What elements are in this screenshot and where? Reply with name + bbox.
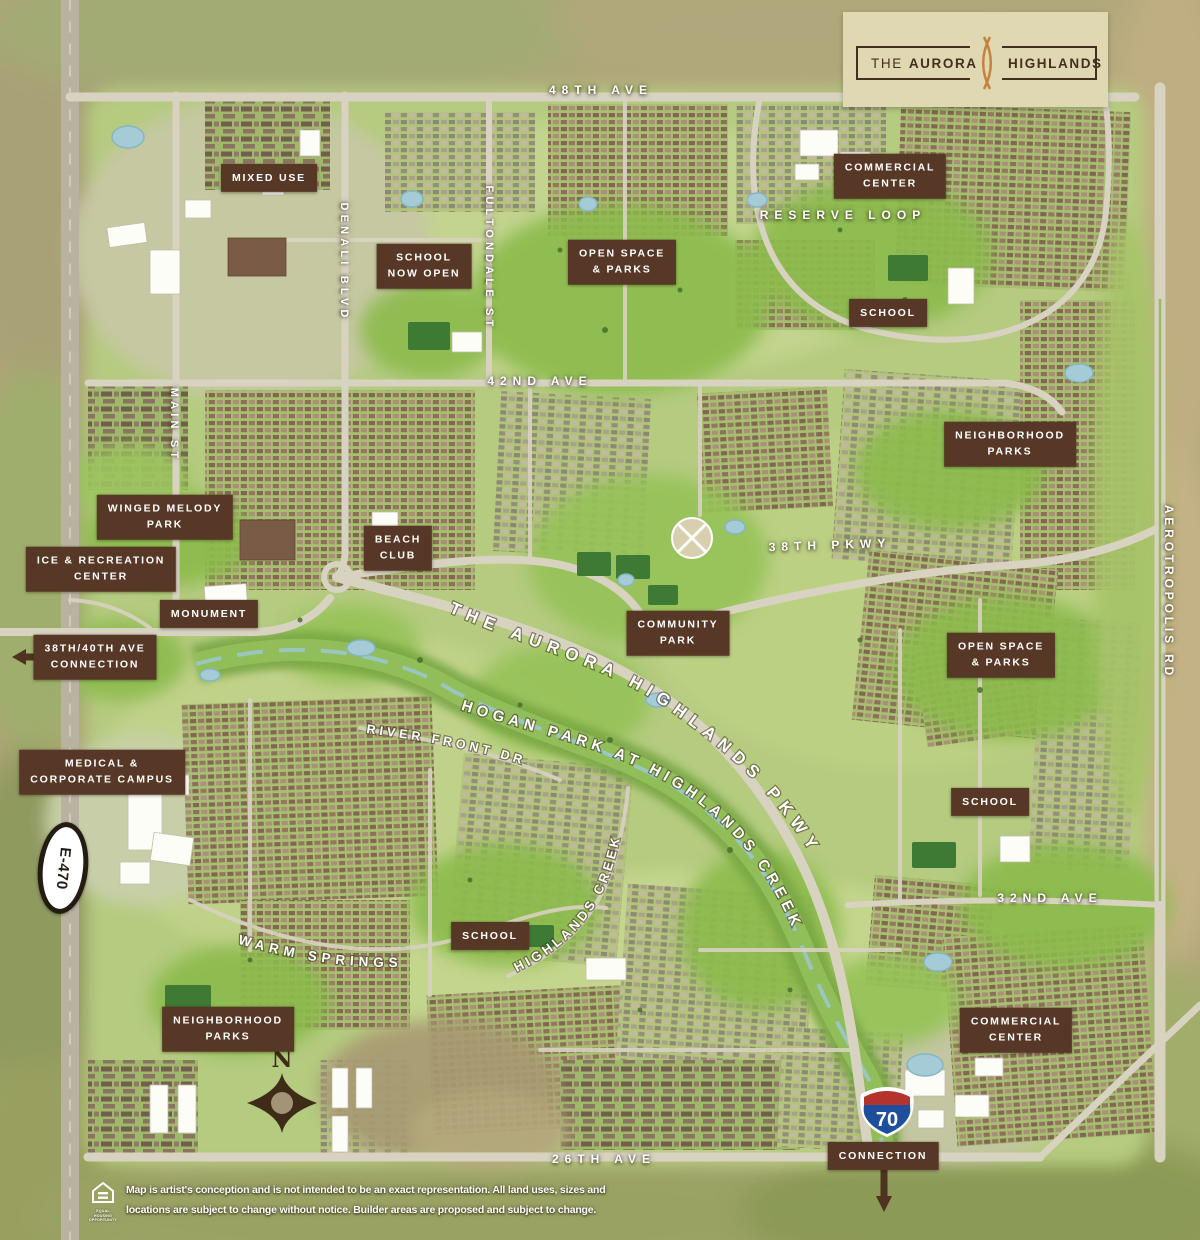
street-fultondale-st: FULTONDALE ST [483,186,495,331]
e470-label: E-470 [52,846,73,890]
label-medical-corporate-campus: MEDICAL & CORPORATE CAMPUS [19,750,185,795]
street-42nd-ave: 42ND AVE [487,374,592,388]
logo-wheat-curves-icon [972,36,1002,90]
label-ice-recreation-center: ICE & RECREATION CENTER [26,547,176,592]
street-aerotropolis-rd: AEROTROPOLIS RD [1162,505,1176,679]
disclaimer-line2: locations are subject to change without … [126,1201,646,1221]
masterplan-map: 70 N THE AURORA HIGHLANDS PKWY HOGAN PAR… [0,0,1200,1240]
label-school-southwest: SCHOOL [451,922,529,950]
label-open-space-parks-north: OPEN SPACE & PARKS [568,240,676,285]
label-school-northeast: SCHOOL [849,299,927,327]
label-commercial-center-north: COMMERCIAL CENTER [834,154,946,199]
logo-title-right: HIGHLANDS [1008,48,1103,78]
equal-housing-icon [90,1180,116,1204]
logo-the: THE [871,56,903,71]
street-48th-ave: 48TH AVE [549,83,653,97]
label-beach-club: BEACH CLUB [364,526,432,571]
label-neighborhood-parks-southwest: NEIGHBORHOOD PARKS [162,1007,294,1052]
logo-border-box: THE AURORA HIGHLANDS [856,46,1097,80]
street-32nd-ave: 32ND AVE [997,891,1102,905]
label-community-park: COMMUNITY PARK [627,611,730,656]
eho-text-line1: EQUAL HOUSING [88,1209,118,1218]
label-winged-melody-park: WINGED MELODY PARK [97,495,233,540]
street-main-st: MAIN ST [168,388,180,462]
street-reserve-loop: RESERVE LOOP [760,208,926,222]
disclaimer-line1: Map is artist's conception and is not in… [126,1181,646,1201]
logo-aurora: AURORA [909,56,978,71]
label-school-east: SCHOOL [951,788,1029,816]
label-monument: MONUMENT [160,600,258,628]
equal-housing-logo: EQUAL HOUSING OPPORTUNITY [88,1180,118,1223]
label-school-now-open: SCHOOL NOW OPEN [377,244,472,289]
street-26th-ave: 26TH AVE [552,1152,656,1166]
label-mixed-use: MIXED USE [221,164,317,192]
logo-title-left: THE AURORA [871,48,978,78]
logo-highlands: HIGHLANDS [1008,56,1103,71]
label-38th-40th-ave-connection: 38TH/40TH AVE CONNECTION [33,635,156,680]
street-denali-blvd: DENALI BLVD [338,202,350,321]
label-open-space-parks-east: OPEN SPACE & PARKS [947,633,1055,678]
label-neighborhood-parks-east: NEIGHBORHOOD PARKS [944,422,1076,467]
interstate-70-number: 70 [876,1109,898,1131]
aurora-highlands-logo: THE AURORA HIGHLANDS [843,12,1108,107]
label-commercial-center-south: COMMERCIAL CENTER [960,1008,1072,1053]
eho-text-line2: OPPORTUNITY [88,1218,118,1223]
label-connection-i70: CONNECTION [828,1142,939,1170]
